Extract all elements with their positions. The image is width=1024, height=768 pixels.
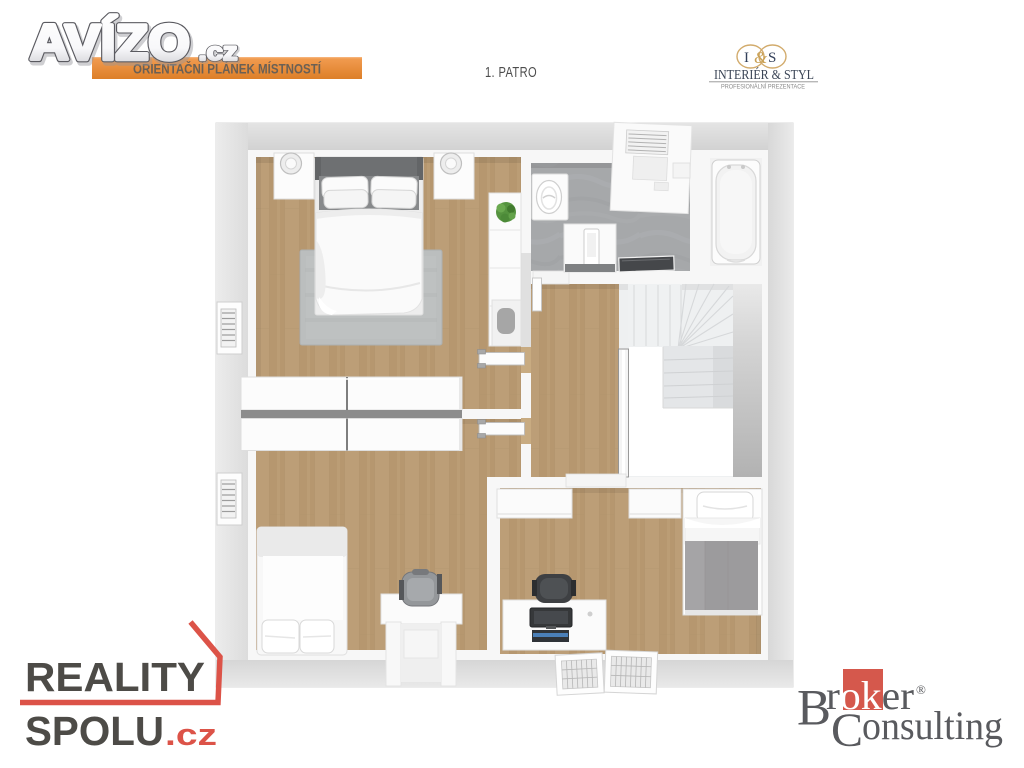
svg-text:onsulting: onsulting — [862, 703, 1003, 748]
svg-text:.cz: .cz — [199, 38, 238, 66]
svg-text:INTERIÉR & STYL: INTERIÉR & STYL — [714, 66, 814, 82]
svg-text:S: S — [768, 50, 776, 66]
svg-text:.cz: .cz — [165, 717, 217, 752]
svg-text:AVÍZO: AVÍZO — [30, 15, 190, 71]
svg-text:I: I — [744, 50, 749, 66]
svg-text:&: & — [754, 48, 768, 67]
svg-text:®: ® — [916, 682, 926, 697]
svg-text:REALITY: REALITY — [25, 654, 205, 700]
svg-text:C: C — [831, 704, 863, 757]
svg-text:1. PATRO: 1. PATRO — [485, 64, 537, 81]
svg-text:PROFESIONÁLNÍ PREZENTACE: PROFESIONÁLNÍ PREZENTACE — [721, 84, 805, 91]
svg-text:SPOLU: SPOLU — [25, 708, 164, 754]
